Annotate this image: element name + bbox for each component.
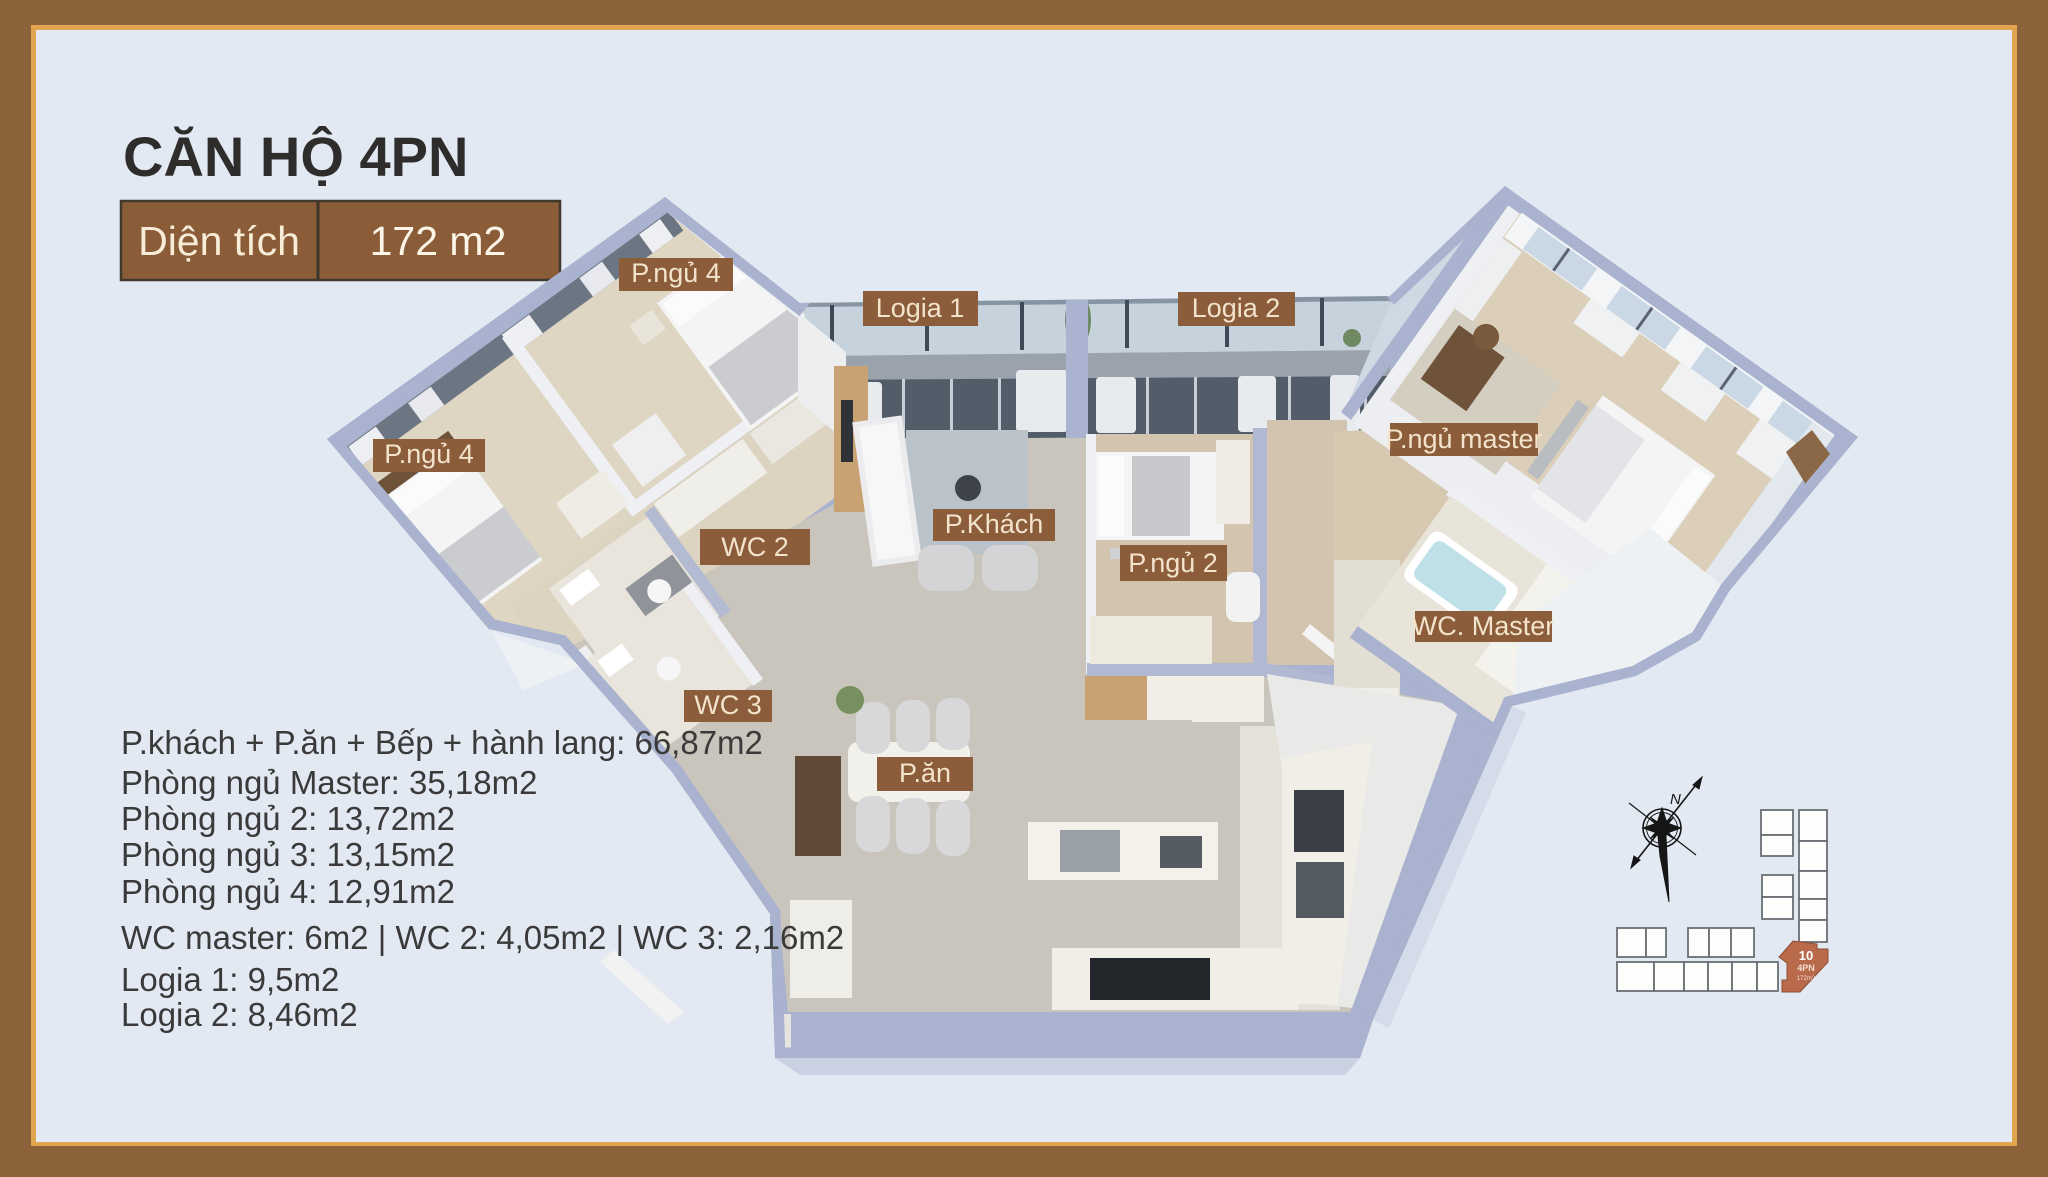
svg-text:Logia 2: 8,46m2: Logia 2: 8,46m2 xyxy=(121,996,358,1033)
svg-text:N: N xyxy=(1670,791,1681,808)
svg-text:172 m2: 172 m2 xyxy=(370,218,507,264)
svg-text:WC master: 6m2 | WC 2: 4,05m2: WC master: 6m2 | WC 2: 4,05m2 | WC 3: 2,… xyxy=(121,919,844,956)
svg-text:Phòng ngủ Master: 35,18m2: Phòng ngủ Master: 35,18m2 xyxy=(121,764,537,801)
svg-text:Diện tích: Diện tích xyxy=(138,218,300,264)
svg-text:Phòng ngủ 2: 13,72m2: Phòng ngủ 2: 13,72m2 xyxy=(121,800,455,837)
svg-text:Phòng ngủ 4: 12,91m2: Phòng ngủ 4: 12,91m2 xyxy=(121,873,455,910)
svg-text:P.ngủ 2: P.ngủ 2 xyxy=(1128,548,1218,578)
svg-text:P.ngủ 4: P.ngủ 4 xyxy=(384,439,474,469)
svg-text:P.Khách: P.Khách xyxy=(945,509,1044,539)
svg-text:Logia 2: Logia 2 xyxy=(1192,293,1281,323)
svg-text:WC 2: WC 2 xyxy=(721,532,789,562)
svg-text:P.ngủ master: P.ngủ master xyxy=(1385,424,1542,454)
svg-text:10: 10 xyxy=(1799,948,1813,963)
svg-text:CĂN HỘ 4PN: CĂN HỘ 4PN xyxy=(123,125,468,188)
svg-text:WC. Master: WC. Master xyxy=(1412,611,1555,641)
svg-text:P.ăn: P.ăn xyxy=(899,758,951,788)
svg-text:172m2: 172m2 xyxy=(1797,976,1816,982)
svg-text:4PN: 4PN xyxy=(1797,963,1815,973)
svg-text:P.ngủ 4: P.ngủ 4 xyxy=(631,258,721,288)
svg-text:WC 3: WC 3 xyxy=(694,690,762,720)
svg-text:Logia 1: 9,5m2: Logia 1: 9,5m2 xyxy=(121,961,339,998)
svg-text:P.khách + P.ăn + Bếp + hành la: P.khách + P.ăn + Bếp + hành lang: 66,87m… xyxy=(121,724,763,761)
svg-text:Logia 1: Logia 1 xyxy=(876,293,965,323)
svg-text:Phòng ngủ 3: 13,15m2: Phòng ngủ 3: 13,15m2 xyxy=(121,836,455,873)
